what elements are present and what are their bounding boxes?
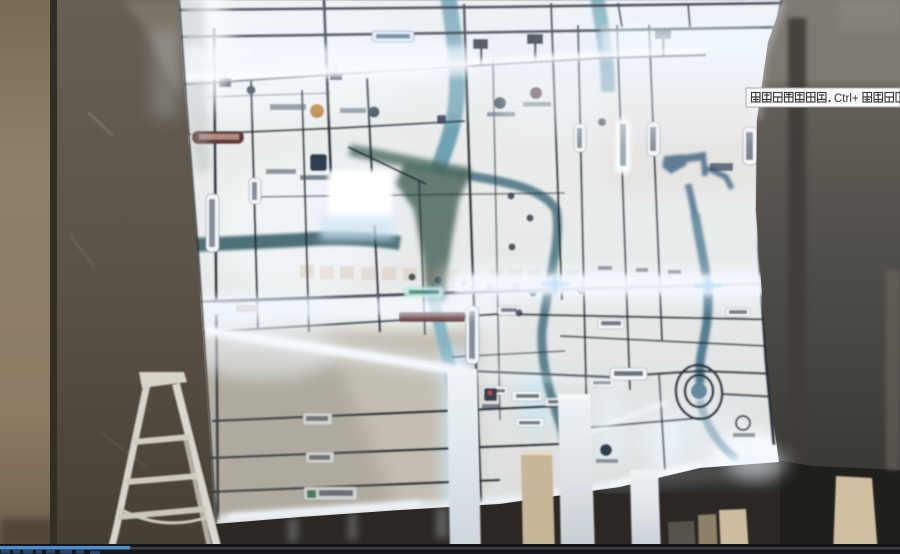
svg-text:Ctrl+: Ctrl+ [834, 93, 859, 105]
